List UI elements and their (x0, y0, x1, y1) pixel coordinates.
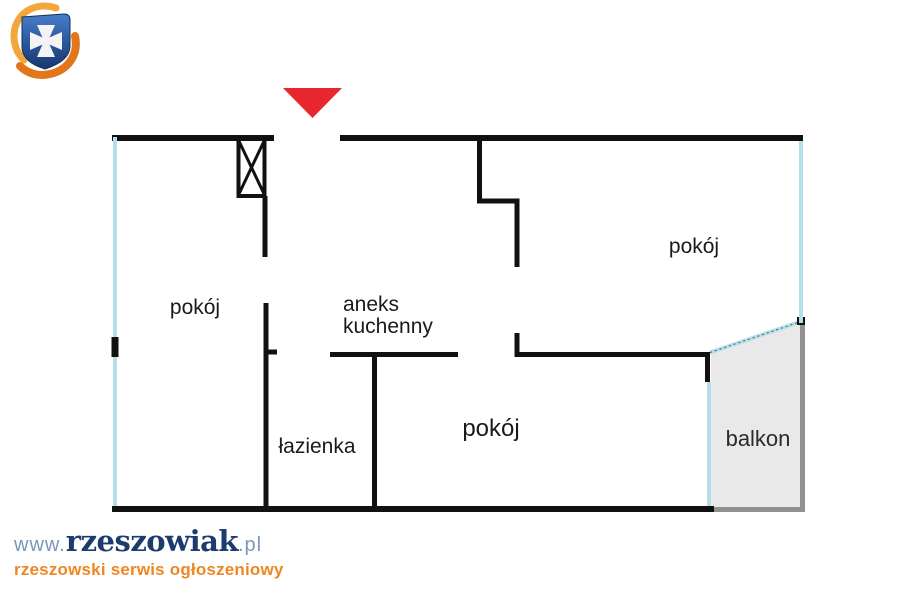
site-url-tld: .pl (238, 534, 262, 557)
room-label-aneks-kuchenny: aneks kuchenny (343, 294, 455, 338)
site-watermark: www.rzeszowiak.pl rzeszowski serwis ogło… (14, 527, 284, 580)
top-right-room-step-wall (480, 136, 518, 267)
room-label-balkon: balkon (726, 427, 791, 450)
rzeszowiak-logo-icon (0, 0, 84, 84)
site-name: rzeszowiak (66, 527, 238, 556)
site-url-prefix: www. (14, 534, 66, 557)
room-label-lazienka: łazienka (278, 436, 355, 458)
room-label-pokoj-left: pokój (170, 297, 220, 319)
site-url: www.rzeszowiak.pl (14, 527, 284, 557)
room-label-pokoj-top-right: pokój (669, 236, 719, 258)
site-tagline: rzeszowski serwis ogłoszeniowy (14, 560, 284, 580)
balcony-area (711, 323, 801, 510)
entrance-arrow-icon (283, 88, 342, 118)
floorplan-page: pokój pokój pokój aneks kuchenny łazienk… (0, 0, 900, 593)
room-label-pokoj-bottom: pokój (462, 416, 519, 441)
